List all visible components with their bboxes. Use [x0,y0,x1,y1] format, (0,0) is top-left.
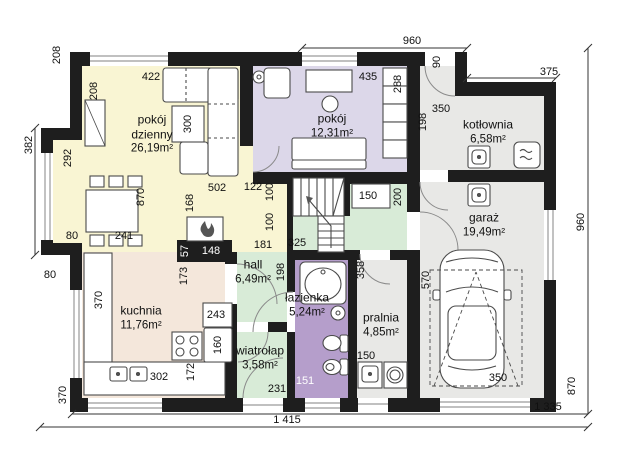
room-name: hall [235,258,271,273]
dim-boiler-198: 198 [417,113,429,131]
room-name: kotłownia [463,118,513,133]
room-area: 5,24m² [285,305,329,319]
armchair [264,68,290,98]
radiator [85,100,105,146]
bedroom-sofa [292,138,366,169]
dim-left-208-inner: 208 [88,82,100,100]
dim-dining-80: 80 [66,230,78,242]
dim-kitchen-173: 173 [178,267,190,285]
dim-top-960: 960 [403,35,421,47]
bathroom-sink [331,306,345,320]
dim-fridge-160: 160 [212,336,224,354]
room-label-bathroom: łazienka 5,24m² [285,291,329,320]
bidet [323,359,348,375]
room-name: pokój dzienny [120,112,184,141]
dim-sofa-502: 502 [208,182,226,194]
desk [306,70,352,92]
room-name: łazienka [285,291,329,306]
dim-desk-435: 435 [359,71,377,83]
washing-machine [384,362,407,388]
dim-fireplace-57: 57 [179,245,191,257]
dim-door-90: 90 [431,56,443,68]
dim-stair-325: 325 [288,237,306,249]
floor-plan-drawing [0,0,621,474]
garage-door-leaf [440,402,530,407]
dim-sofa-422: 422 [142,71,160,83]
room-name: pralnia [363,311,399,326]
window-living-top [90,56,168,61]
window-bathroom-bottom [305,403,340,408]
dim-left-382: 382 [23,136,35,154]
floor-drain [468,146,490,168]
room-area: 6,58m² [463,132,513,146]
dim-fireplace-148: 148 [202,245,220,257]
toilet [323,335,348,352]
dim-sink-302: 302 [150,371,168,383]
dim-cabinet-200: 200 [392,188,404,206]
dim-counter-172: 172 [185,363,197,381]
dim-right-960: 960 [575,213,587,231]
dim-laundry-150: 150 [357,350,375,362]
dim-stair-122: 122 [244,181,262,193]
floor-plan: 960 90 375 208 208 422 435 288 350 198 3… [0,0,621,474]
room-area: 3,58m² [236,358,284,372]
room-area: 6,49m² [235,272,271,286]
floor-drain [468,184,490,206]
boiler-heater [514,142,540,168]
room-area: 11,76m² [120,318,161,332]
dim-living-870: 870 [135,188,147,206]
dim-top-375: 375 [540,66,558,78]
room-area: 26,19m² [120,142,184,156]
window-garage-right [548,210,553,280]
stove [172,332,202,360]
room-label-garage: garaż 19,49m² [463,211,505,240]
dim-hall-198: 198 [275,263,287,281]
room-label-living-room: pokój dzienny 26,19m² [120,112,184,155]
room-area: 12,31m² [311,126,353,140]
dim-hall-181: 181 [254,239,272,251]
dim-bump-80: 80 [44,269,56,281]
dim-wardrobe-288: 288 [392,75,404,93]
dim-kitchen-370: 370 [93,291,105,309]
dim-counter-243: 243 [207,309,225,321]
room-name: wiatrołap [236,344,284,359]
dim-cabinet-150: 150 [359,190,377,202]
dim-boiler-350: 350 [432,103,450,115]
room-label-laundry: pralnia 4,85m² [363,311,399,340]
dim-fireplace-168: 168 [184,194,196,212]
window-kitchen-left [74,290,79,378]
room-label-kitchen: kuchnia 11,76m² [120,304,161,333]
dim-left-292: 292 [62,149,74,167]
dim-stair-100-lower: 100 [264,213,276,231]
dim-bottom-left-370: 370 [57,386,69,404]
room-label-vestibule: wiatrołap 3,58m² [236,344,284,373]
dim-bathroom-151: 151 [296,375,314,387]
dim-dining-241: 241 [115,230,133,242]
room-label-hall: hall 6,49m² [235,258,271,287]
car [433,250,511,388]
laundry-basin [358,362,382,388]
room-name: garaż [463,211,505,226]
room-label-bedroom: pokój 12,31m² [311,112,353,141]
room-area: 4,85m² [363,325,399,339]
fireplace [187,217,223,241]
desk-chair [322,96,338,112]
dim-vestibule-231: 231 [268,383,286,395]
dim-right-870: 870 [566,377,578,395]
dim-laundry-358: 358 [355,261,367,279]
room-name: pokój [311,112,353,127]
room-label-boiler-room: kotłownia 6,58m² [463,118,513,147]
dim-garage-door-350: 350 [489,372,507,384]
dim-total-width-1415: 1 415 [273,414,301,426]
room-area: 19,49m² [463,225,505,239]
room-name: kuchnia [120,304,161,319]
dim-body-width-1335: 1 335 [534,401,562,413]
window-bedroom-top [302,56,357,61]
dim-garage-570: 570 [420,271,432,289]
floor-lamp [253,71,265,83]
dim-left-208-outer: 208 [51,46,63,64]
dim-stair-100-upper: 100 [264,183,276,201]
window-kitchen-bottom [88,403,162,408]
window-dining-bay [45,153,50,240]
